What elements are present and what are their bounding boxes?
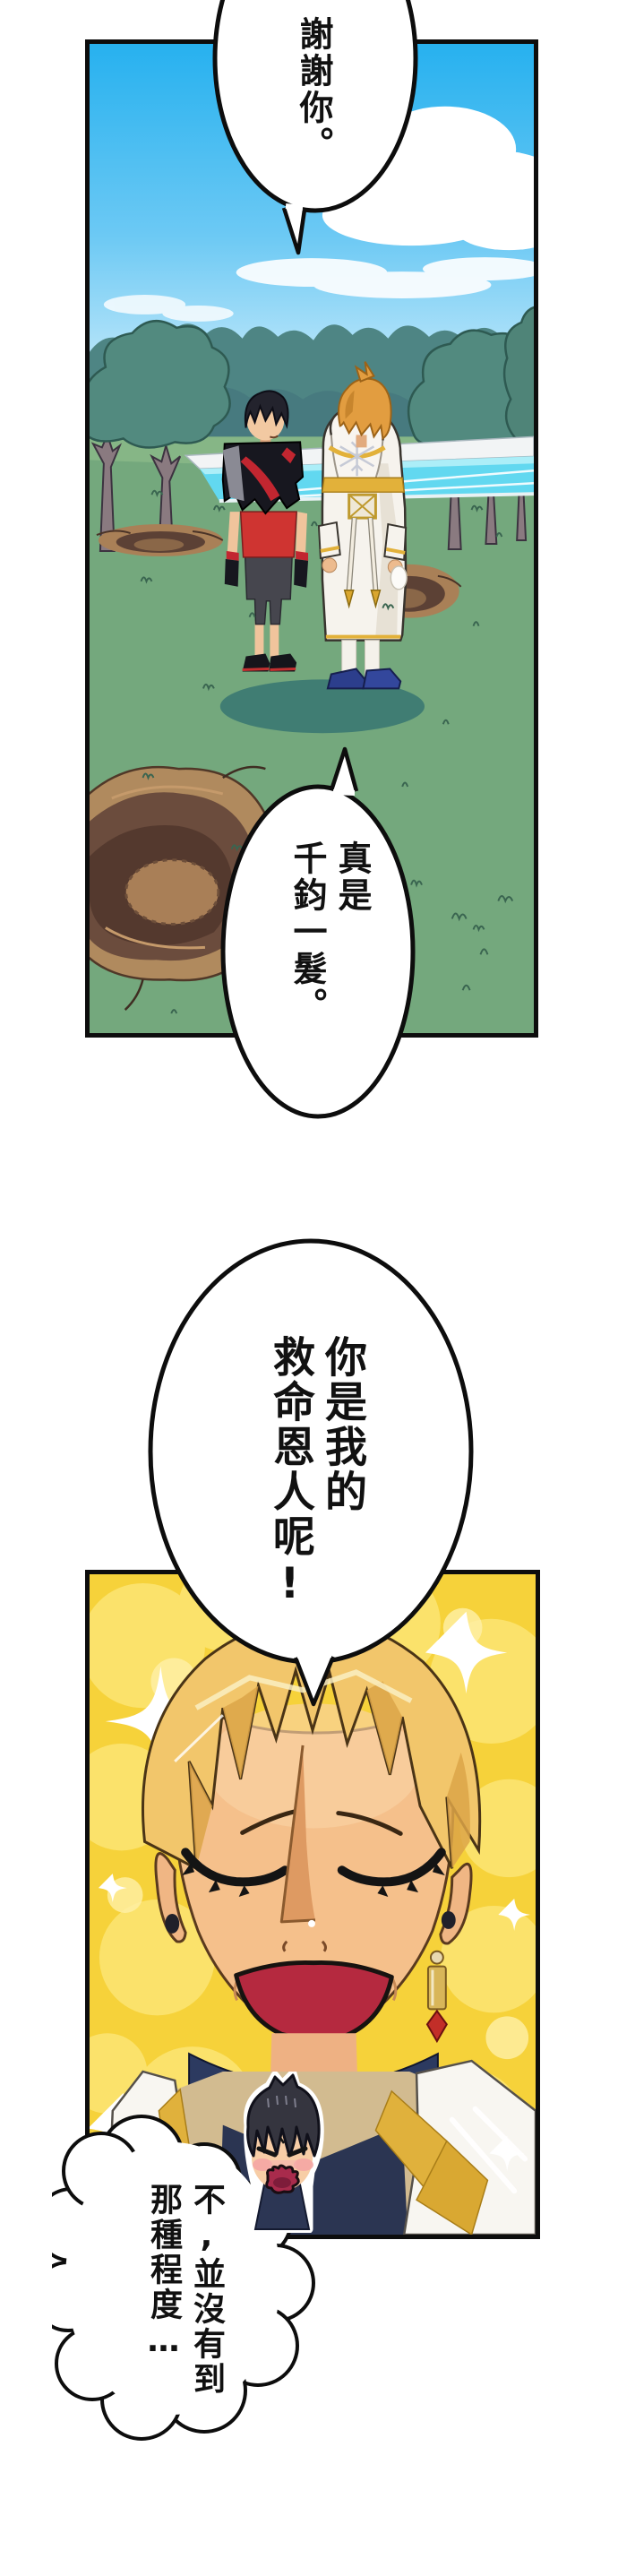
chibi-black-haired-boy bbox=[228, 2072, 336, 2233]
bubble-text-savior: 你是我的 救命恩人呢! bbox=[263, 1335, 367, 1622]
bubble-text-thanks: 謝謝你。 bbox=[292, 16, 335, 222]
comic-page: 謝謝你。 真是 千鈞一髮。 你是我的 救命恩人呢! 不,並沒有到 那種程度… bbox=[0, 0, 618, 2576]
bubble-text-close-call: 真是 千鈞一髮。 bbox=[285, 840, 374, 1064]
bubble-text-not-that-much: 不,並沒有到 那種程度… bbox=[142, 2183, 227, 2416]
